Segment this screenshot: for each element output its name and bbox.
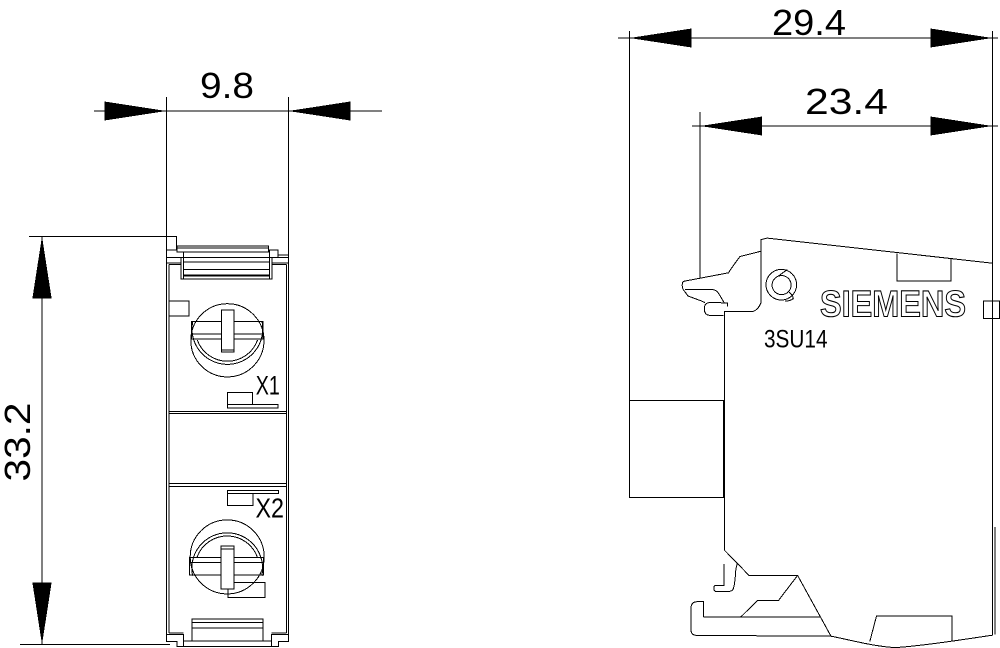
svg-text:33.2: 33.2 bbox=[0, 403, 38, 482]
svg-text:SIEMENS: SIEMENS bbox=[820, 284, 966, 325]
svg-text:29.4: 29.4 bbox=[772, 2, 846, 43]
svg-text:23.4: 23.4 bbox=[805, 81, 888, 122]
svg-text:X2: X2 bbox=[256, 493, 285, 524]
svg-text:9.8: 9.8 bbox=[200, 65, 254, 106]
svg-text:X1: X1 bbox=[256, 371, 280, 401]
svg-text:3SU14: 3SU14 bbox=[764, 326, 828, 354]
